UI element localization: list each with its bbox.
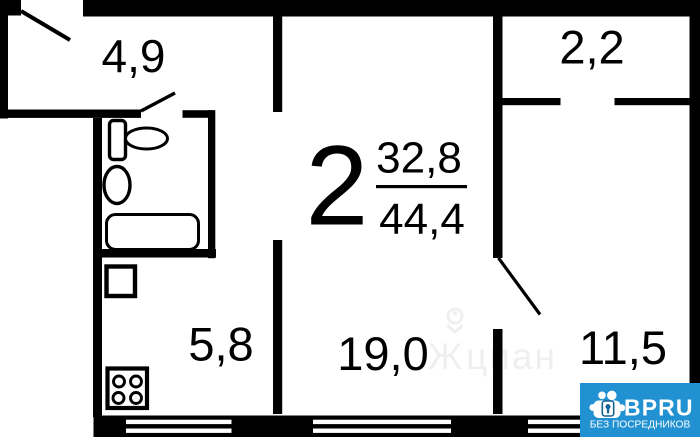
svg-text:32,8: 32,8 bbox=[376, 134, 462, 183]
svg-text:Ж: Ж bbox=[428, 336, 462, 377]
svg-text:19,0: 19,0 bbox=[337, 327, 428, 380]
svg-text:11,5: 11,5 bbox=[579, 321, 667, 374]
svg-text:44,4: 44,4 bbox=[379, 195, 465, 244]
svg-text:циан: циан bbox=[466, 336, 557, 377]
svg-text:5,8: 5,8 bbox=[188, 318, 253, 371]
svg-text:2,2: 2,2 bbox=[559, 21, 624, 74]
svg-text:2: 2 bbox=[306, 123, 369, 249]
svg-text:БЕЗ ПОСРЕДНИКОВ: БЕЗ ПОСРЕДНИКОВ bbox=[590, 419, 691, 430]
svg-text:BPRU: BPRU bbox=[624, 395, 694, 421]
svg-text:4,9: 4,9 bbox=[102, 30, 166, 82]
